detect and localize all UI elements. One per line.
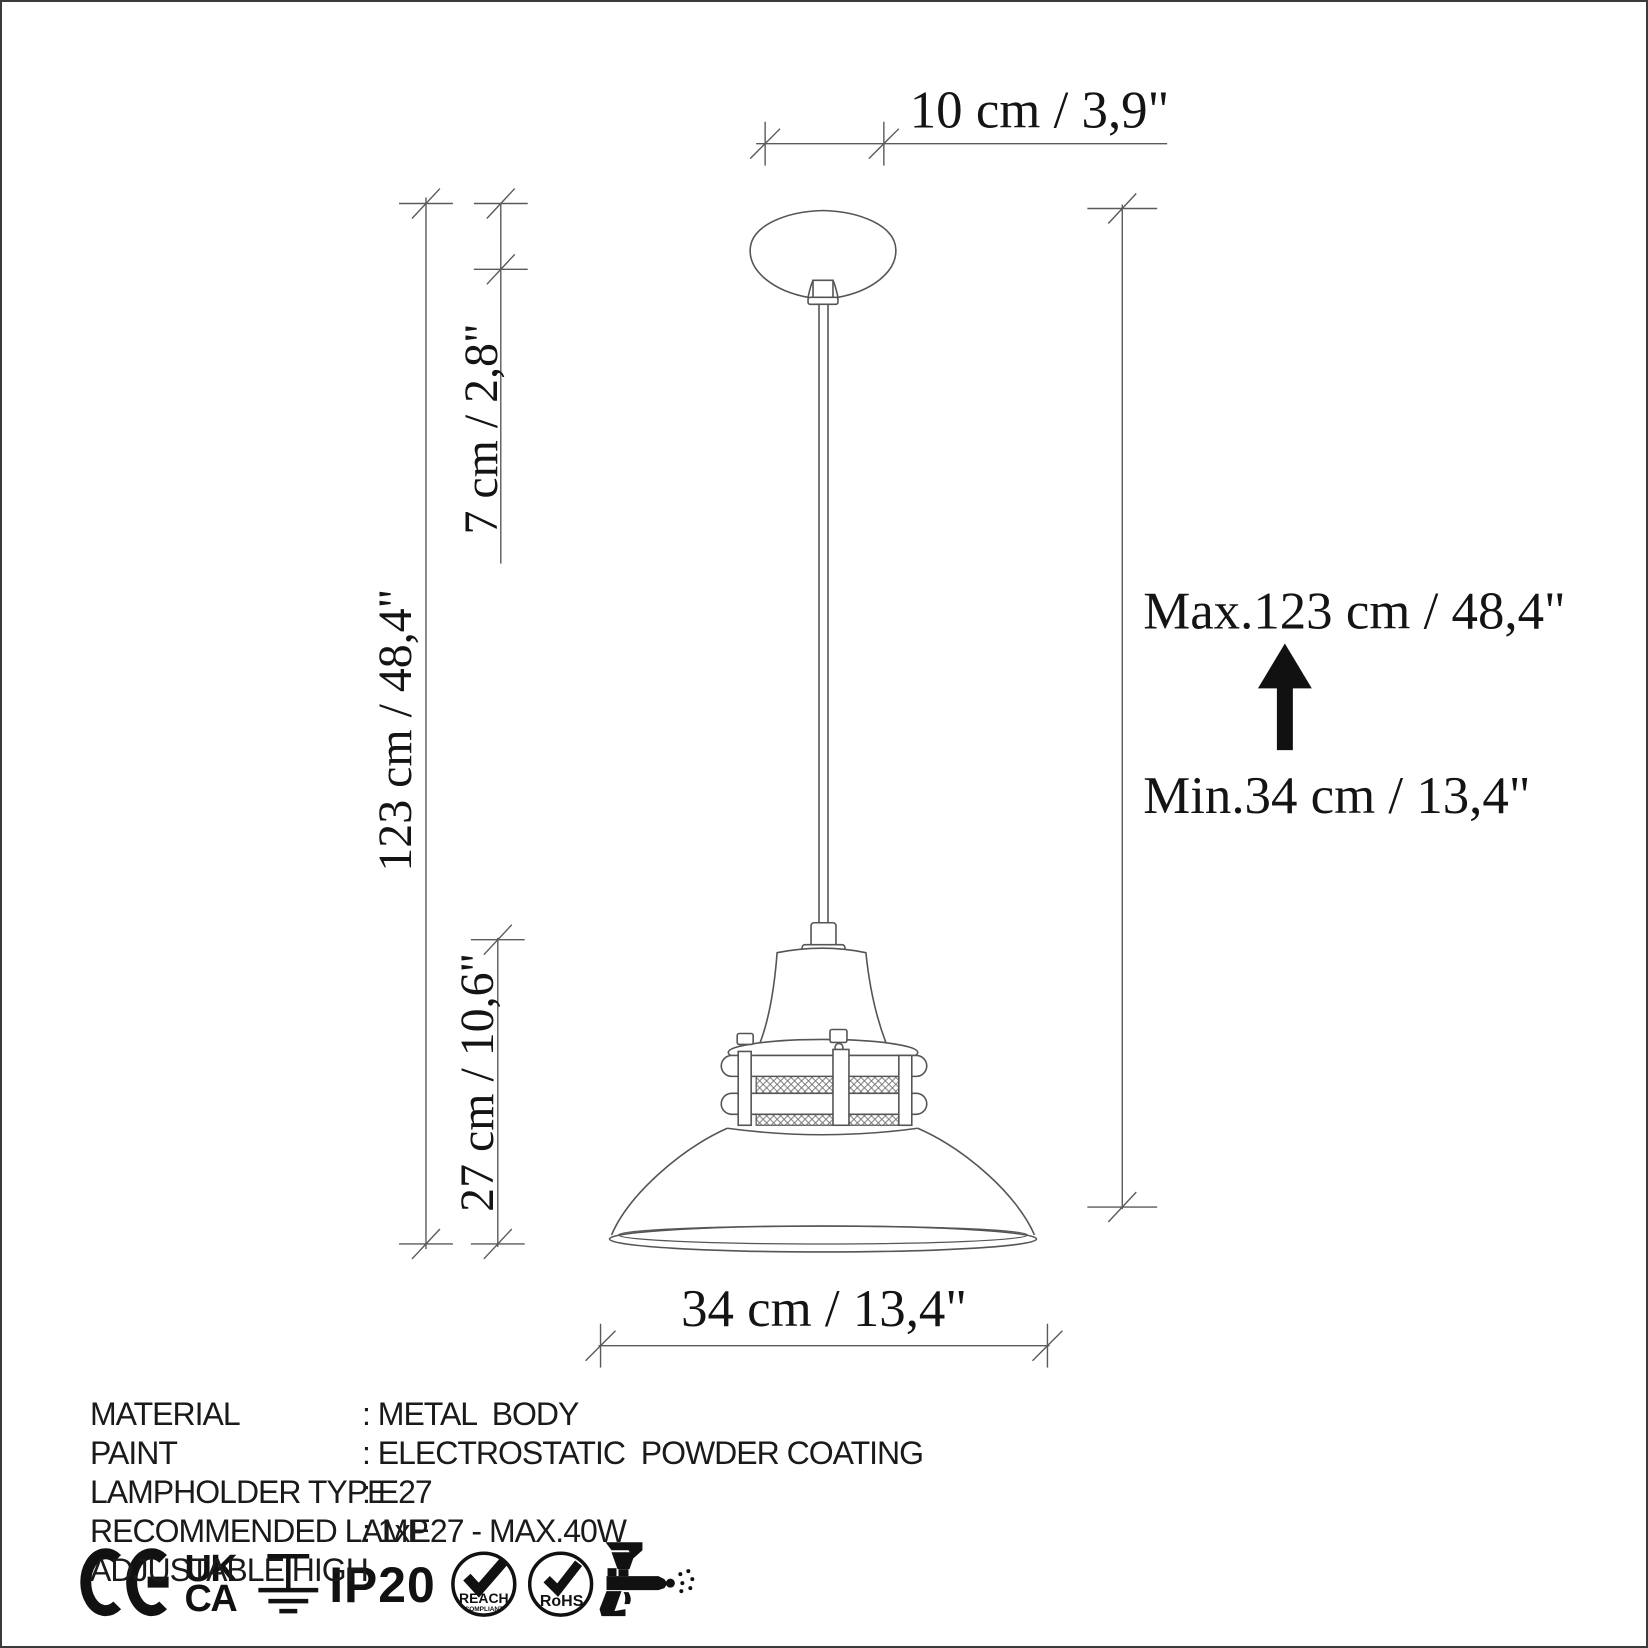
collar-tab-left: [737, 1033, 753, 1044]
spec-value: : METAL BODY: [362, 1395, 578, 1434]
spec-row-material: MATERIAL : METAL BODY: [90, 1395, 990, 1434]
spec-label: PAINT: [90, 1434, 177, 1473]
dim-adjustable-height-line: [1087, 194, 1157, 1222]
lamp-cap: [760, 948, 886, 1042]
collar-tab-center: [830, 1030, 847, 1043]
reach-sublabel: COMPLIANT: [465, 1606, 503, 1613]
specifications-table: MATERIAL : METAL BODY PAINT : ELECTROSTA…: [90, 1395, 990, 1590]
reach-label: REACH: [459, 1590, 509, 1606]
dim-canopy-height-label: 7 cm / 2,8": [455, 323, 508, 534]
spec-label: MATERIAL: [90, 1395, 240, 1434]
spec-row-adjustable: ADJUSTABLE HIGH: [90, 1551, 990, 1590]
dim-hanging-height-label: 123 cm / 48,4": [369, 589, 422, 872]
spec-value: : E27: [362, 1473, 432, 1512]
dim-canopy-width-label: 10 cm / 3,9": [910, 82, 1169, 140]
shade-rim-outer: [610, 1226, 1037, 1252]
spec-value: : 1xE27 - MAX.40W: [362, 1512, 626, 1551]
product-dimension-sheet: 10 cm / 3,9" 123 cm / 48,4" 7 cm / 2,8" …: [0, 0, 1648, 1648]
spec-row-lampholder: LAMPHOLDER TYPE : E27: [90, 1473, 990, 1512]
height-adjust-arrow-icon: [1258, 643, 1312, 750]
canopy-connector: [813, 280, 833, 299]
spec-label: LAMPHOLDER TYPE: [90, 1473, 387, 1512]
rohs-label: RoHS: [540, 1593, 584, 1610]
guard-ring-upper: [721, 1055, 927, 1076]
guard-strut-right: [899, 1055, 912, 1125]
dim-max-height-label: Max.123 cm / 48,4": [1143, 582, 1565, 640]
dim-shade-diameter-label: 34 cm / 13,4": [681, 1280, 967, 1338]
dimension-labels: 10 cm / 3,9" 123 cm / 48,4" 7 cm / 2,8" …: [369, 82, 1566, 1338]
guard-strut-left: [738, 1051, 751, 1125]
canopy-connector-flange: [808, 297, 838, 304]
guard-ring-lower: [721, 1093, 927, 1114]
spec-value: : ELECTROSTATIC POWDER COATING: [362, 1434, 923, 1473]
dim-fixture-height-label: 27 cm / 10,6": [451, 953, 504, 1212]
spec-row-paint: PAINT : ELECTROSTATIC POWDER COATING: [90, 1434, 990, 1473]
spec-label: ADJUSTABLE HIGH: [90, 1551, 368, 1590]
dim-min-height-label: Min.34 cm / 13,4": [1143, 767, 1530, 825]
spec-row-recommended-lamp: RECOMMENDED LAMP : 1xE27 - MAX.40W: [90, 1512, 990, 1551]
suspension-rod: [819, 304, 828, 923]
cord-grip: [811, 923, 836, 947]
pendant-lamp: [610, 210, 1037, 1251]
guard-strut-center: [833, 1049, 849, 1125]
lamp-shade-fill: [612, 1128, 1035, 1240]
